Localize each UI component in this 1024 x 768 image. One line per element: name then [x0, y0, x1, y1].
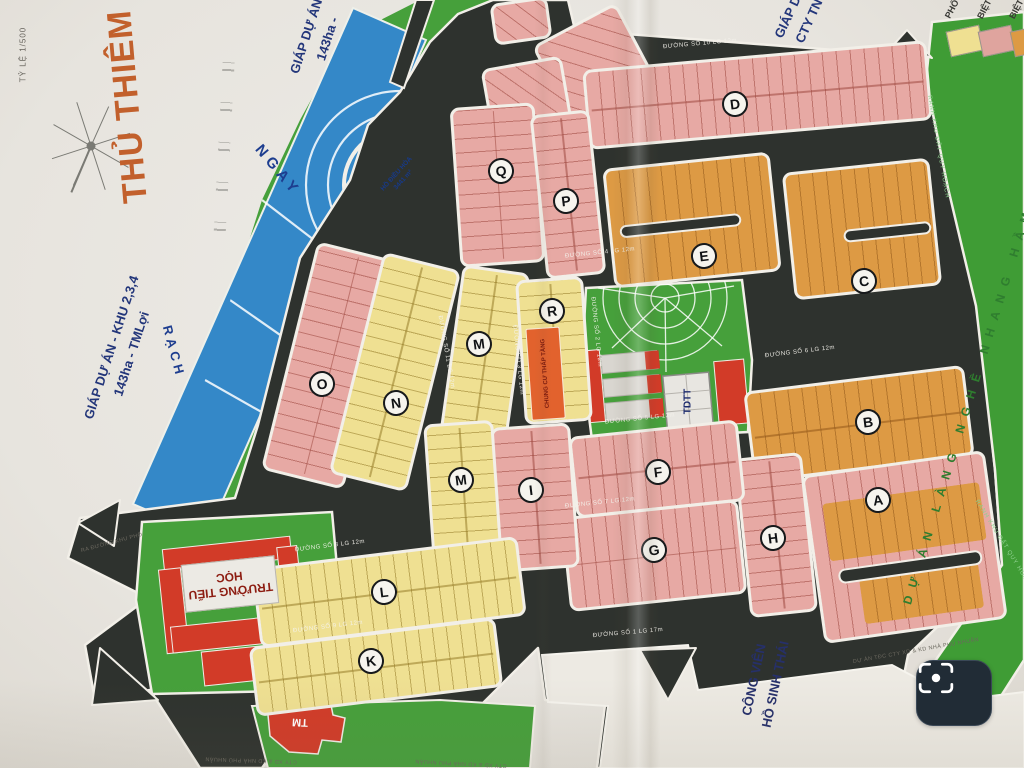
fine-print-text: RA ĐƯỜNG KHU PHỐ	[80, 532, 143, 554]
fine-print-text: CTY XD & KD NHÀ PHÚ NHUẬN	[205, 755, 297, 764]
map-photo: CHUNG CƯ THẤP TẦNG DQPECONMRBAHFGIMLK ĐƯ…	[0, 0, 1024, 768]
scan-button[interactable]	[916, 660, 992, 726]
fine-print: CTY XD & KD NHÀ PHÚ NHUẬNDỰ ÁN TĐC CTY X…	[0, 0, 1024, 768]
fine-print-text: CTY XD & KD NHÀ PHÚ NHUẬN	[415, 758, 507, 768]
scan-frame-icon	[917, 661, 955, 695]
